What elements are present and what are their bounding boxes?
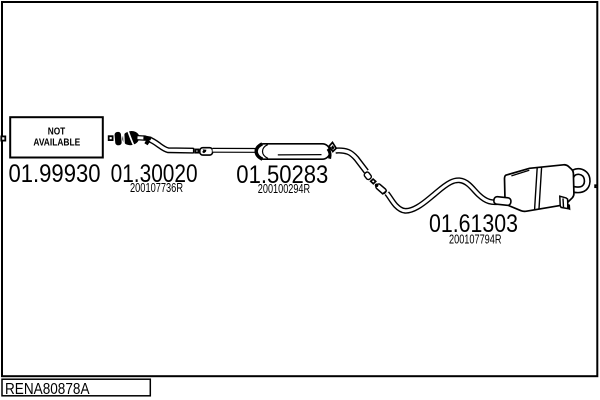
svg-text:01.99930: 01.99930 — [9, 160, 101, 188]
svg-text:NOT: NOT — [48, 126, 66, 137]
svg-text:RENA80878A: RENA80878A — [5, 381, 90, 398]
svg-text:200107736R: 200107736R — [130, 180, 183, 195]
svg-text:AVAILABLE: AVAILABLE — [33, 137, 80, 148]
svg-text:200100294R: 200100294R — [258, 181, 310, 196]
svg-text:200107794R: 200107794R — [449, 231, 502, 246]
